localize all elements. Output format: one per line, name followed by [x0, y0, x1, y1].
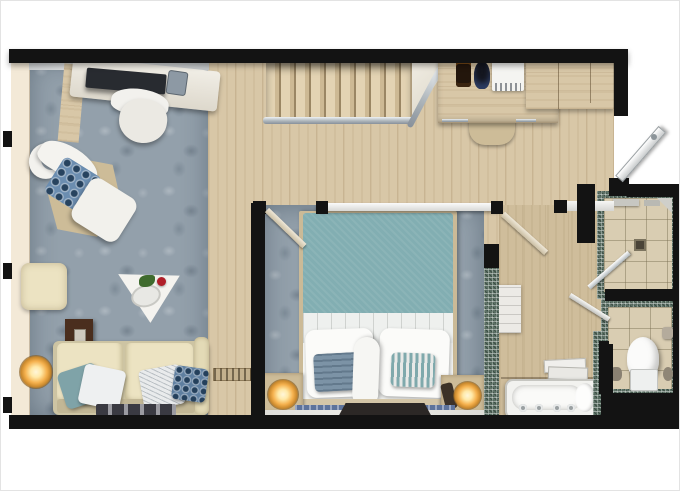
bedroom-door-jamb-right — [316, 201, 328, 214]
doormat — [213, 368, 251, 381]
desk-telephone — [165, 70, 188, 97]
top-wall — [9, 49, 628, 63]
stair-railing — [263, 117, 415, 124]
toilet-brush — [663, 367, 673, 381]
toilet-cistern — [630, 369, 658, 391]
minibar-grate — [495, 83, 521, 91]
entry-hinge-wall — [609, 178, 629, 196]
cabinet-divider — [590, 59, 591, 103]
bottom-wall — [9, 415, 613, 429]
staircase — [266, 63, 412, 119]
bedroom-partition-wall — [316, 203, 501, 211]
table-lamp-right — [453, 381, 482, 410]
toilet-paper-holder — [662, 327, 673, 339]
accent-cushion-right — [390, 352, 435, 388]
shower-top-wall — [627, 184, 673, 197]
entry-door — [615, 126, 666, 182]
drawer-handle — [442, 119, 468, 122]
kettle — [474, 61, 490, 89]
bathroom-door-jamb — [554, 200, 567, 213]
shower-drain — [634, 239, 646, 251]
partition-end-post — [491, 201, 503, 214]
bath-pillow — [575, 383, 595, 412]
floor-lamp — [19, 355, 53, 389]
mosaic-cap-wall — [484, 244, 499, 268]
shower-left-wall — [577, 184, 595, 243]
bottom-right-wall-block — [601, 393, 680, 429]
right-upper-wall — [614, 61, 628, 116]
bath-faucet — [535, 404, 543, 412]
linen-shelf — [499, 285, 521, 333]
bath-faucet — [519, 404, 527, 412]
drawer-handle — [516, 119, 536, 122]
kitchen-cabinets — [526, 59, 614, 109]
shower-shelf — [613, 199, 639, 206]
window-mullion — [3, 131, 12, 147]
entry-door-handle — [651, 134, 657, 140]
blue-throw-pillow — [171, 365, 209, 403]
duvet — [303, 213, 453, 313]
floor-plan — [0, 0, 680, 491]
throw-roll — [352, 337, 380, 408]
coffee-machine — [456, 61, 471, 87]
bath-faucet — [567, 404, 575, 412]
corridor-wall — [251, 203, 265, 415]
pouf — [21, 263, 67, 310]
window-mullion — [3, 397, 12, 413]
bath-wc-wall — [601, 344, 613, 394]
window-mullion — [3, 263, 12, 279]
cabinet-divider — [558, 59, 559, 109]
shower-shelf — [644, 200, 660, 206]
rose-decor — [157, 277, 166, 286]
mosaic-partition — [484, 268, 499, 418]
shower-wc-wall — [605, 289, 679, 301]
bath-faucet — [553, 404, 561, 412]
